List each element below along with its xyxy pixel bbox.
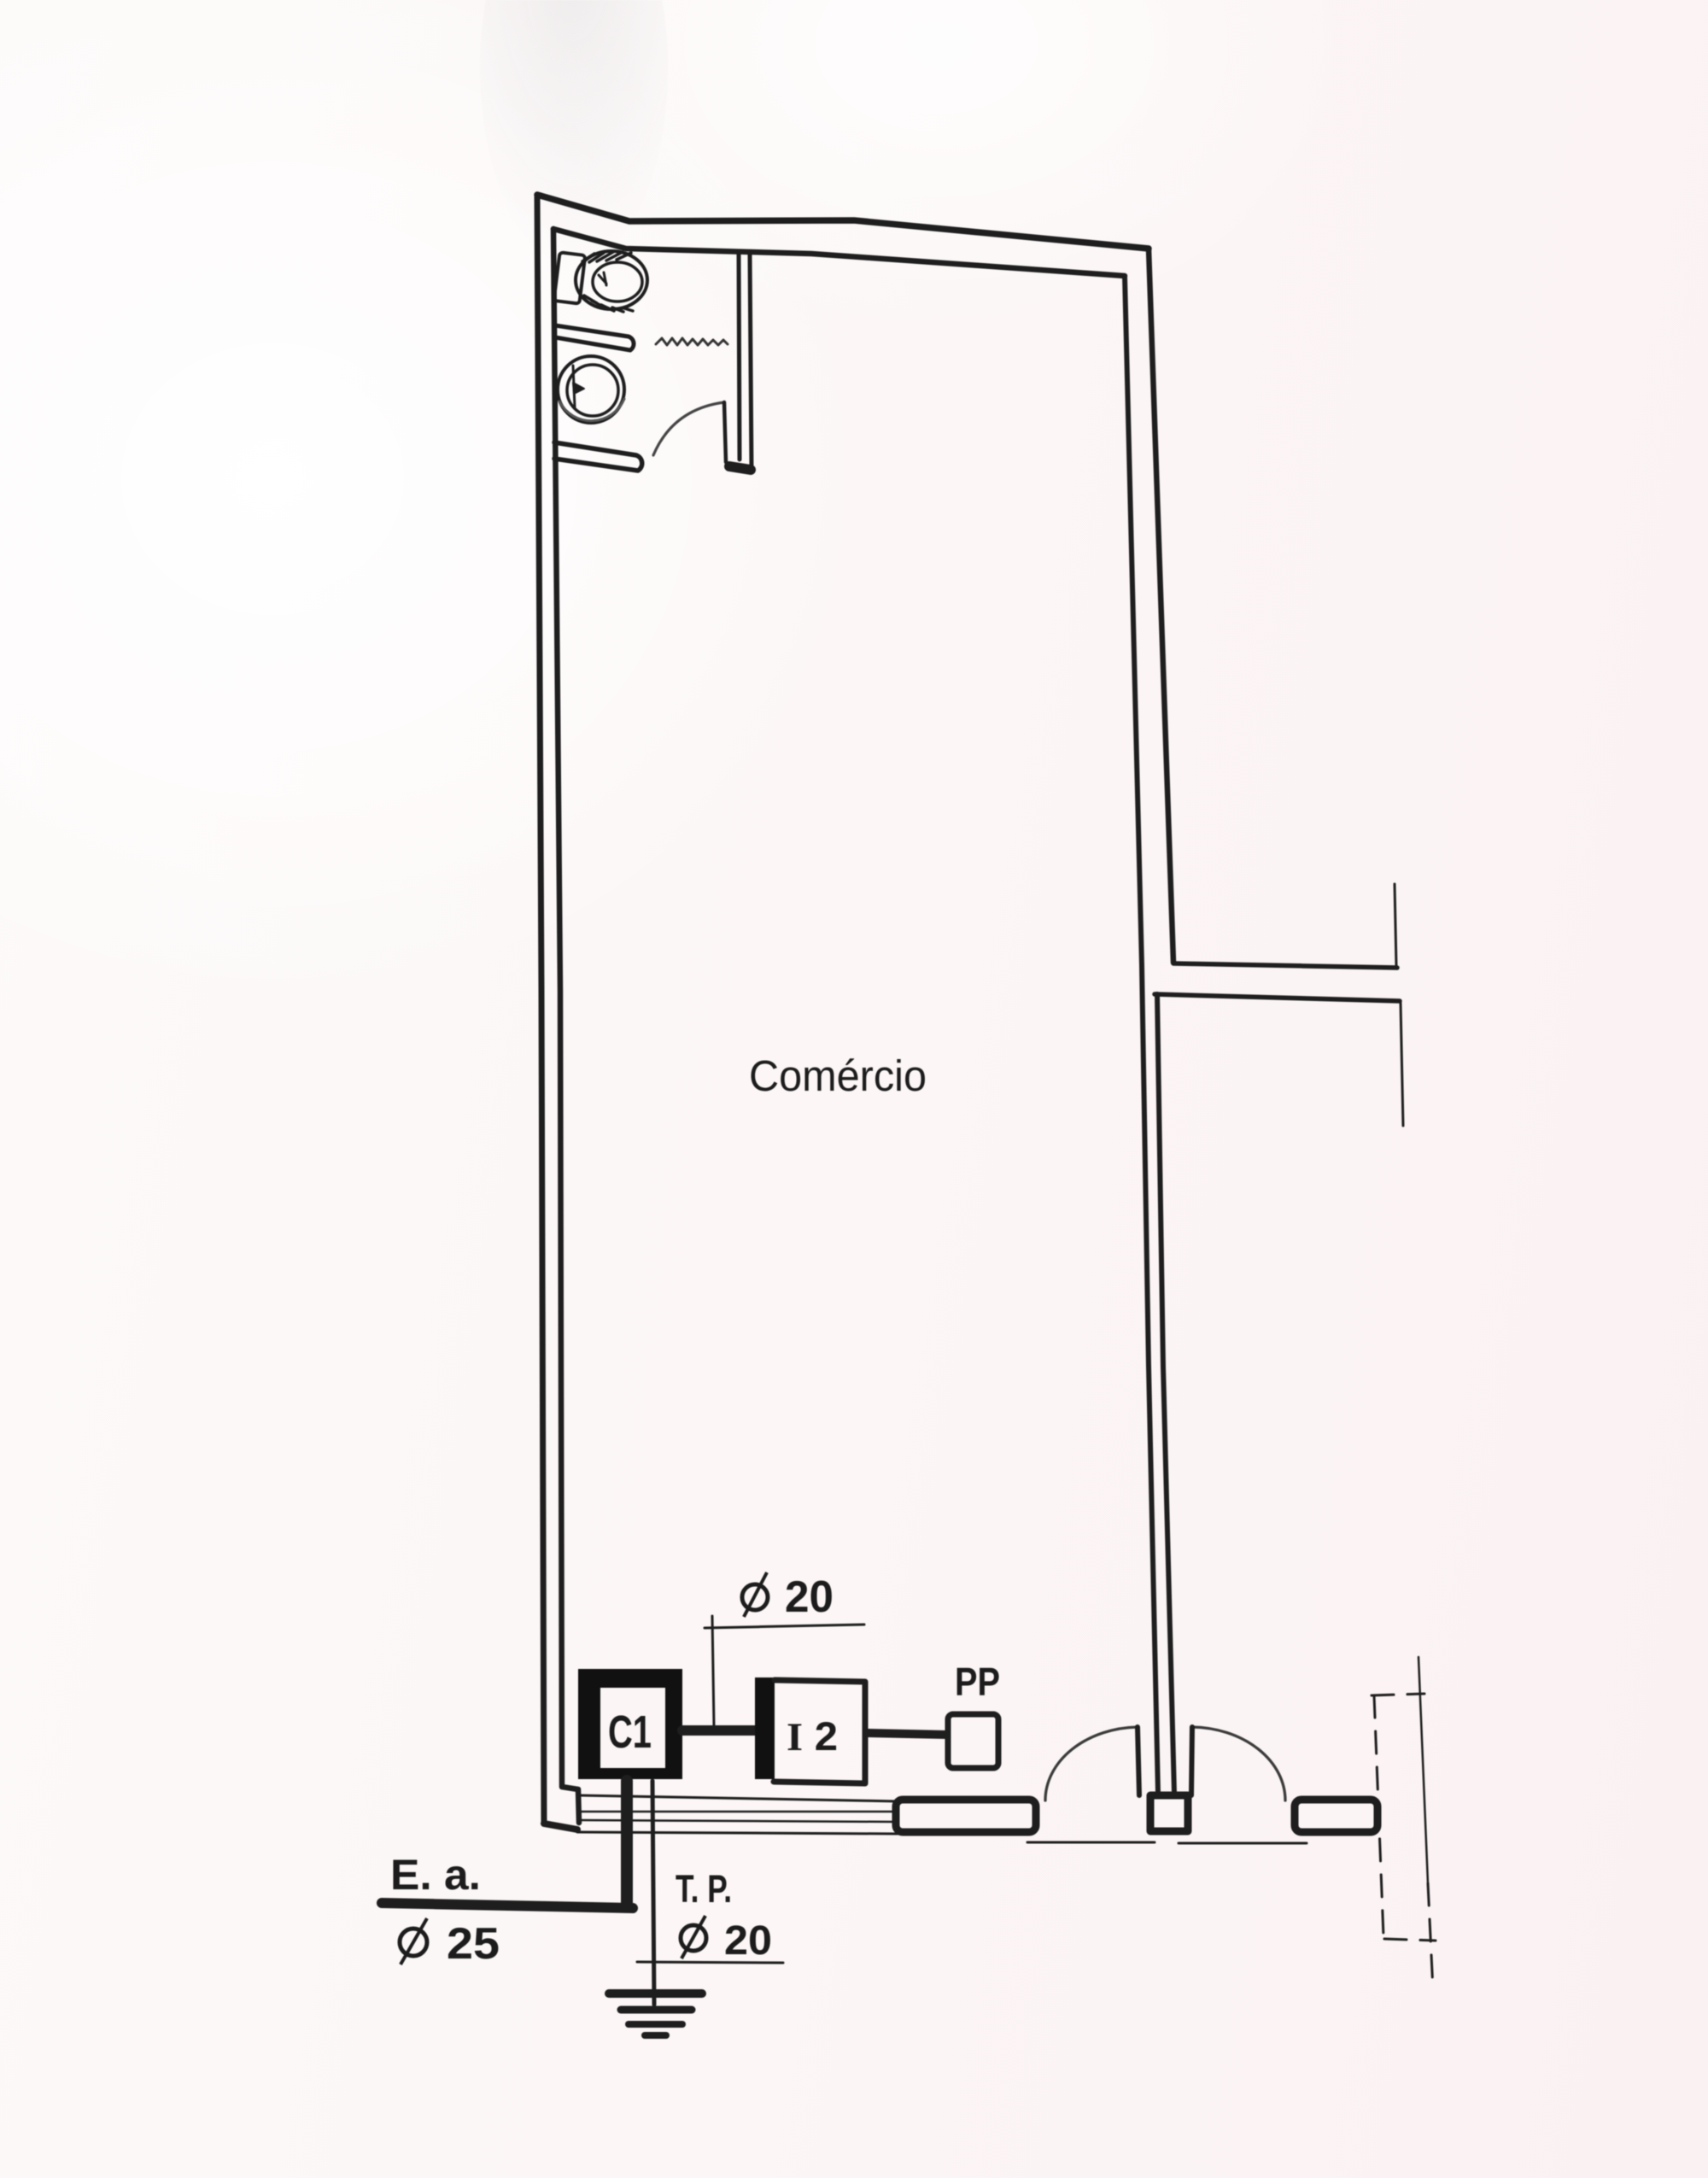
- svg-text:Comércio: Comércio: [749, 1051, 927, 1100]
- svg-text:T. P.: T. P.: [676, 1867, 732, 1911]
- svg-text:25: 25: [447, 1919, 500, 1969]
- svg-text:PP: PP: [955, 1660, 1000, 1704]
- svg-text:I 2: I 2: [787, 1713, 838, 1759]
- svg-text:20: 20: [724, 1918, 772, 1964]
- svg-text:E. a.: E. a.: [390, 1851, 481, 1899]
- svg-text:20: 20: [785, 1572, 834, 1622]
- svg-text:C1: C1: [608, 1707, 652, 1758]
